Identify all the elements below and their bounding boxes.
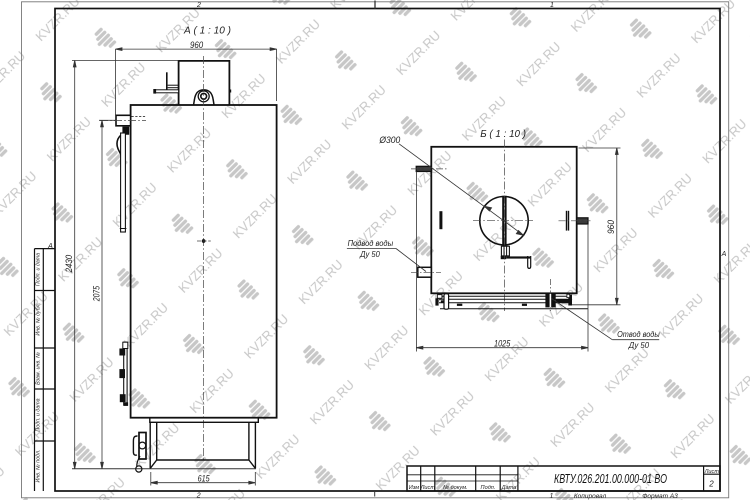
svg-text:Б ( 1 : 10 ): Б ( 1 : 10 ): [480, 128, 526, 140]
svg-text:А ( 1 : 10 ): А ( 1 : 10 ): [183, 25, 231, 37]
svg-text:1: 1: [550, 493, 554, 500]
svg-text:Копировал: Копировал: [574, 493, 607, 500]
svg-text:КВТУ.026.201.00.000-01 ВО: КВТУ.026.201.00.000-01 ВО: [554, 472, 667, 486]
svg-text:Ø300: Ø300: [378, 135, 400, 145]
svg-text:Инв. № дубл.: Инв. № дубл.: [36, 303, 42, 336]
svg-text:Инв. № подл.: Инв. № подл.: [36, 450, 42, 483]
svg-text:2075: 2075: [91, 286, 101, 302]
svg-text:Ду 50: Ду 50: [628, 340, 649, 350]
svg-text:2: 2: [708, 480, 714, 489]
svg-text:Подп.: Подп.: [481, 485, 496, 491]
svg-text:2: 2: [196, 493, 201, 500]
svg-text:Дата: Дата: [501, 485, 517, 491]
svg-text:2430: 2430: [64, 255, 74, 274]
svg-text:Подп. и дата: Подп. и дата: [36, 253, 42, 286]
svg-text:А: А: [721, 251, 727, 258]
svg-text:Отвод воды: Отвод воды: [617, 329, 660, 339]
svg-text:960: 960: [190, 40, 203, 50]
svg-text:Формат А3: Формат А3: [642, 493, 678, 500]
svg-text:Лист: Лист: [704, 469, 720, 475]
svg-text:Изм: Изм: [409, 485, 420, 491]
svg-text:Взам. инв. №: Взам. инв. №: [36, 352, 42, 385]
svg-text:Ду 50: Ду 50: [359, 249, 380, 259]
svg-text:1025: 1025: [494, 339, 510, 349]
svg-text:Лист: Лист: [420, 485, 436, 491]
svg-text:№ докум.: № докум.: [443, 485, 468, 491]
svg-text:2: 2: [196, 2, 201, 9]
svg-text:Подвод воды: Подвод воды: [348, 238, 394, 248]
svg-text:Подп. и дата: Подп. и дата: [36, 398, 42, 431]
svg-text:1: 1: [550, 2, 554, 9]
svg-text:960: 960: [606, 220, 616, 234]
svg-text:615: 615: [198, 473, 210, 483]
